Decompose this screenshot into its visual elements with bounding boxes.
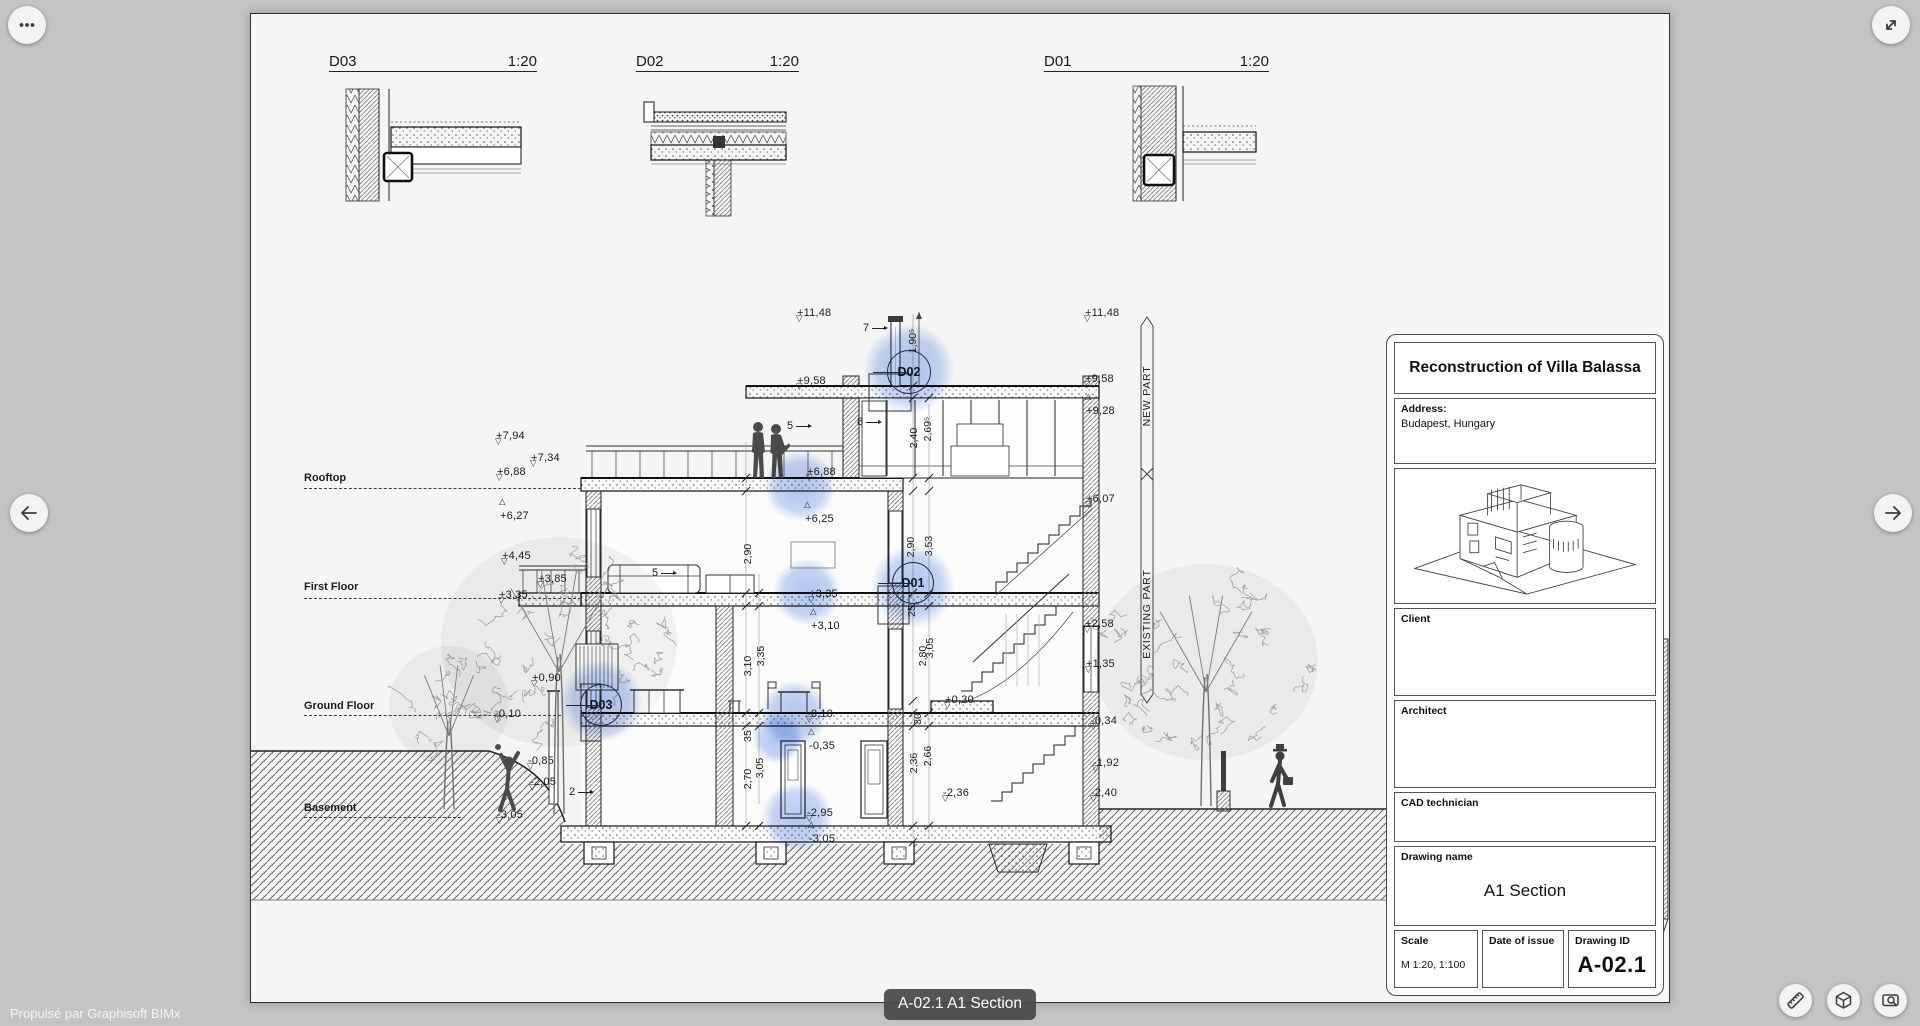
elevation-marker: △+9,28 xyxy=(1086,401,1115,419)
elevation-marker: △+6,27 xyxy=(500,506,529,524)
next-sheet-arrow-icon xyxy=(1882,502,1904,524)
callout-leader xyxy=(796,426,809,427)
address-box: Address: Budapest, Hungary xyxy=(1394,398,1656,464)
dimension-text: 30 xyxy=(912,713,924,725)
level-triangle-icon: △ xyxy=(804,500,811,509)
sheet-zoom-icon xyxy=(1880,990,1901,1011)
sheet-title-pill: A-02.1 A1 Section xyxy=(884,989,1036,1020)
elevation-marker: ▽+1,35 xyxy=(1086,654,1115,672)
drawing-id-value: A-02.1 xyxy=(1575,952,1649,978)
address-value: Budapest, Hungary xyxy=(1401,418,1649,430)
date-of-issue-box: Date of issue xyxy=(1482,930,1564,988)
detail-id: D02 xyxy=(636,53,664,70)
elevation-marker: ▽+6,88 xyxy=(497,462,526,480)
level-triangle-icon: ▽ xyxy=(806,473,813,482)
dimension-text: 3,05 xyxy=(754,758,766,778)
client-label: Client xyxy=(1401,613,1649,625)
floor-level-label: First Floor xyxy=(304,581,358,593)
hotspot-glow[interactable] xyxy=(752,712,804,764)
dimension-text: 3,53 xyxy=(923,536,935,556)
callout-leader xyxy=(872,328,885,329)
level-triangle-icon: ▽ xyxy=(1090,794,1097,803)
dimension-text: 2,66 xyxy=(922,746,934,766)
elevation-marker: ▽+2,58 xyxy=(1085,614,1114,632)
elevation-marker: △-3,05 xyxy=(809,829,835,847)
floor-level-line xyxy=(304,598,581,599)
title-block-bottom-row: Scale M 1:20, 1:100 Date of issue Drawin… xyxy=(1394,930,1656,988)
elevation-marker: ▽+7,34 xyxy=(531,448,560,466)
elevation-marker: ▽+6,88 xyxy=(807,462,836,480)
date-of-issue-label: Date of issue xyxy=(1489,935,1557,947)
floor-level-line xyxy=(304,817,461,818)
level-triangle-icon: ▽ xyxy=(537,580,544,589)
dimension-text: 2,70 xyxy=(742,769,754,789)
more-options-icon xyxy=(17,15,37,35)
title-block: Reconstruction of Villa Balassa Address:… xyxy=(1386,334,1664,996)
floor-level-line xyxy=(304,715,561,716)
callout-leader xyxy=(866,422,879,423)
callout-leader xyxy=(661,573,674,574)
drawing-name-box: Drawing name A1 Section xyxy=(1394,846,1656,926)
fullscreen-button[interactable] xyxy=(1872,6,1910,44)
elevation-marker: ▽-3,05 xyxy=(497,805,523,823)
cad-technician-box: CAD technician xyxy=(1394,792,1656,842)
material-callout: 7 xyxy=(863,322,885,334)
level-triangle-icon: △ xyxy=(1085,392,1092,401)
level-triangle-icon: ▽ xyxy=(808,595,815,604)
bimx-viewer: RooftopFirst FloorGround FloorBasement▽+… xyxy=(0,0,1920,1026)
3d-cube-icon xyxy=(1833,990,1854,1011)
dimension-text: 2,40 xyxy=(908,428,920,448)
level-triangle-icon: ▽ xyxy=(529,783,536,792)
elevation-marker: ▽+11,48 xyxy=(1085,303,1119,321)
level-triangle-icon: ▽ xyxy=(530,459,537,468)
part-designation-label: NEW PART xyxy=(1141,366,1153,427)
client-box: Client xyxy=(1394,608,1656,696)
material-callout: 8 xyxy=(857,416,879,428)
elevation-marker: ▽-0,85 xyxy=(528,751,554,769)
fullscreen-expand-icon xyxy=(1881,15,1901,35)
detail-scale: 1:20 xyxy=(508,53,537,70)
level-triangle-icon: ▽ xyxy=(1084,314,1091,323)
dimension-text: 25 xyxy=(906,605,918,617)
dimension-text: 2,90 xyxy=(742,544,754,564)
dimension-text: 35 xyxy=(742,730,754,742)
elevation-marker: ▽-2,05 xyxy=(530,772,556,790)
floor-level-label: Ground Floor xyxy=(304,700,374,712)
dimension-text: 3,35 xyxy=(755,646,767,666)
elevation-marker: ▽+3,35 xyxy=(499,585,528,603)
detail-header-d02: D021:20 xyxy=(636,52,799,72)
level-triangle-icon: ▽ xyxy=(527,762,534,771)
level-triangle-icon: ▽ xyxy=(496,816,503,825)
detail-scale: 1:20 xyxy=(770,53,799,70)
level-triangle-icon: △ xyxy=(808,820,815,829)
level-triangle-icon: △ xyxy=(499,497,506,506)
dimension-text: 2,36 xyxy=(908,753,920,773)
callout-leader xyxy=(578,792,591,793)
material-callout: 2 xyxy=(569,786,591,798)
model-3d-button[interactable] xyxy=(1827,984,1860,1017)
level-triangle-icon: ▽ xyxy=(944,701,951,710)
elevation-marker: △+3,10 xyxy=(811,616,840,634)
scale-value: M 1:20, 1:100 xyxy=(1401,959,1471,971)
floor-level-label: Rooftop xyxy=(304,472,346,484)
floor-level-label: Basement xyxy=(304,802,357,814)
elevation-marker: ▽-1,92 xyxy=(1093,753,1119,771)
elevation-marker: ▽-0,34 xyxy=(1091,711,1117,729)
elevation-marker: ▽+3,35 xyxy=(809,584,838,602)
address-label: Address: xyxy=(1401,403,1649,415)
axonometric-sketch xyxy=(1401,475,1649,597)
more-options-button[interactable] xyxy=(8,6,46,44)
next-sheet-button[interactable] xyxy=(1874,494,1912,532)
elevation-marker: ▽+6,07 xyxy=(1086,489,1115,507)
axonometric-thumbnail xyxy=(1394,468,1656,604)
elevation-marker: ▽+0,30 xyxy=(945,690,974,708)
dimension-text: 2,90 xyxy=(905,537,917,557)
level-triangle-icon: ▽ xyxy=(494,715,501,724)
elevation-marker: ▽-2,36 xyxy=(943,783,969,801)
dimension-text: 3,05 xyxy=(924,638,936,658)
level-triangle-icon: △ xyxy=(810,607,817,616)
detail-marker-d02[interactable]: D02 xyxy=(887,350,931,394)
detail-id: D03 xyxy=(329,53,357,70)
measure-button[interactable] xyxy=(1779,984,1812,1017)
floor-level-line xyxy=(304,488,581,489)
previous-sheet-button[interactable] xyxy=(10,494,48,532)
powered-by-label: Propulsé par Graphisoft BIMx xyxy=(10,1006,181,1021)
level-triangle-icon: ▽ xyxy=(1092,764,1099,773)
level-triangle-icon: ▽ xyxy=(796,314,803,323)
level-triangle-icon: ▽ xyxy=(1084,380,1091,389)
elevation-marker: ▽+7,94 xyxy=(496,426,525,444)
scale-box: Scale M 1:20, 1:100 xyxy=(1394,930,1478,988)
level-triangle-icon: ▽ xyxy=(495,437,502,446)
elevation-marker: ▽+0,90 xyxy=(532,668,561,686)
previous-sheet-arrow-icon xyxy=(18,502,40,524)
elevation-marker: ▽-0,10 xyxy=(495,704,521,722)
dimension-text: 3,10 xyxy=(742,656,754,676)
architect-label: Architect xyxy=(1401,705,1649,717)
dimension-text: 2,69⁵ xyxy=(922,417,934,442)
material-callout: 5 xyxy=(787,420,809,432)
level-triangle-icon: ▽ xyxy=(501,557,508,566)
detail-scale: 1:20 xyxy=(1240,53,1269,70)
part-designation-label: EXISTING PART xyxy=(1141,569,1153,658)
level-triangle-icon: ▽ xyxy=(531,679,538,688)
level-triangle-icon: ▽ xyxy=(1085,500,1092,509)
detail-marker-d03[interactable]: D03 xyxy=(580,684,622,726)
sheet-zoom-button[interactable] xyxy=(1874,984,1907,1017)
drawing-id-label: Drawing ID xyxy=(1575,935,1649,947)
level-triangle-icon: ▽ xyxy=(496,473,503,482)
level-triangle-icon: ▽ xyxy=(942,794,949,803)
level-triangle-icon: ▽ xyxy=(806,715,813,724)
detail-header-d01: D011:20 xyxy=(1044,52,1269,72)
elevation-marker: △-0,35 xyxy=(809,736,835,754)
elevation-marker: ▽-2,40 xyxy=(1091,783,1117,801)
drawing-name-label: Drawing name xyxy=(1401,851,1649,863)
scale-label: Scale xyxy=(1401,935,1471,947)
drawing-id-box: Drawing ID A-02.1 xyxy=(1568,930,1656,988)
detail-marker-d01[interactable]: D01 xyxy=(892,562,934,604)
level-triangle-icon: ▽ xyxy=(1085,665,1092,674)
detail-header-d03: D031:20 xyxy=(329,52,537,72)
level-triangle-icon: ▽ xyxy=(796,382,803,391)
project-title: Reconstruction of Villa Balassa xyxy=(1394,342,1656,394)
level-triangle-icon: △ xyxy=(808,727,815,736)
cad-technician-label: CAD technician xyxy=(1401,797,1649,809)
level-triangle-icon: ▽ xyxy=(1090,722,1097,731)
level-triangle-icon: ▽ xyxy=(1084,625,1091,634)
elevation-marker: ▽+3,85 xyxy=(538,569,567,587)
material-callout: 5 xyxy=(652,567,674,579)
level-triangle-icon: ▽ xyxy=(498,596,505,605)
elevation-marker: ▽+9,58 xyxy=(797,371,826,389)
elevation-marker: ▽+4,45 xyxy=(502,546,531,564)
elevation-marker: ▽+11,48 xyxy=(797,303,831,321)
detail-id: D01 xyxy=(1044,53,1072,70)
ruler-icon xyxy=(1785,990,1806,1011)
elevation-marker: ▽-0,10 xyxy=(807,704,833,722)
drawing-sheet[interactable]: RooftopFirst FloorGround FloorBasement▽+… xyxy=(250,13,1670,1003)
elevation-marker: △+6,25 xyxy=(805,509,834,527)
architect-box: Architect xyxy=(1394,700,1656,788)
drawing-name-value: A1 Section xyxy=(1401,881,1649,901)
elevation-marker: ▽+9,58 xyxy=(1085,369,1114,387)
